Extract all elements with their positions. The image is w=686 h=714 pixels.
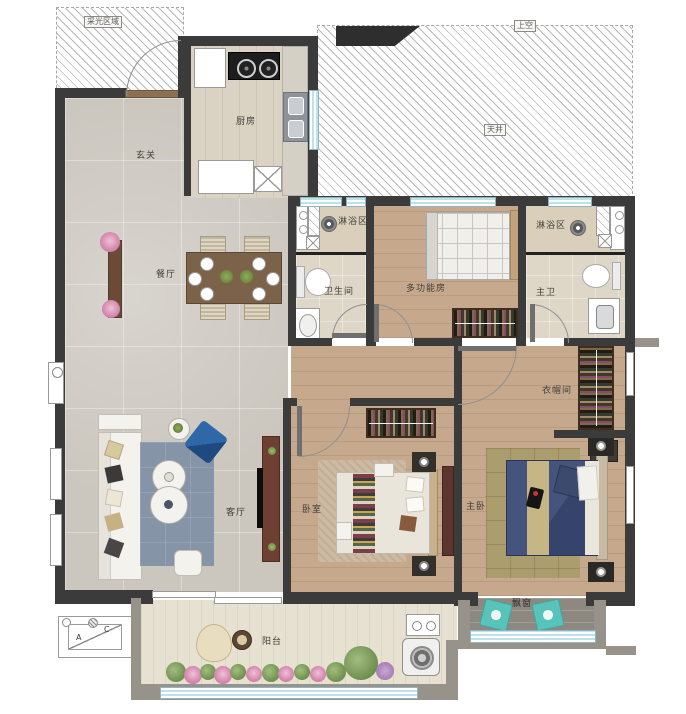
master-suite-door-leaf — [458, 346, 516, 351]
right-wall-window — [626, 352, 634, 396]
shelf-circle — [299, 211, 308, 220]
lamp-icon — [419, 457, 429, 467]
lounge-chair — [196, 624, 232, 662]
neighbor-wall-stub — [606, 646, 636, 655]
room-label-bathroom: 卫生间 — [324, 288, 354, 298]
table-decor — [164, 472, 174, 482]
floor-drain-symbol — [598, 234, 612, 248]
wall-bath-row-bottom — [414, 338, 454, 346]
plate — [252, 287, 266, 301]
hook-circle — [62, 618, 71, 627]
plant — [214, 666, 232, 684]
hatch-area-top-right — [318, 26, 632, 198]
wall-kitchen-top — [186, 36, 316, 46]
left-wall-unit — [48, 362, 64, 404]
shower-head-icon — [570, 220, 586, 236]
wall-living-bedroom-divider — [283, 398, 291, 600]
washing-machine — [402, 638, 440, 676]
right-wall-window — [626, 466, 634, 524]
closet-wardrobe — [578, 346, 614, 430]
plant — [294, 664, 310, 680]
bathroom-window — [300, 197, 342, 207]
wall-bedroom-bottom — [283, 592, 462, 604]
multi-room-window — [410, 197, 496, 207]
toilet-tank — [296, 266, 305, 298]
room-label-balcony: 阳台 — [262, 638, 282, 648]
bay-window-glazing — [470, 630, 596, 643]
bathroom-window — [346, 197, 366, 207]
wall-bath-left — [288, 196, 296, 346]
plant-table — [168, 418, 190, 440]
area-label-open-above: 上空 — [514, 20, 536, 32]
master-nightstand — [588, 562, 614, 582]
television — [257, 468, 263, 528]
shelf-circle — [615, 225, 624, 234]
plant — [246, 666, 262, 682]
toilet-bowl — [582, 264, 610, 288]
bay-pillow — [531, 598, 564, 631]
master-bath-window — [548, 197, 592, 207]
wall-top-left — [55, 88, 127, 98]
plate — [188, 272, 202, 286]
lamp-icon — [419, 561, 429, 571]
wall-multi-masterbath-divider — [518, 196, 526, 346]
balcony-sliding-door — [152, 591, 216, 598]
dining-chair — [244, 302, 270, 320]
cabinet-mark-a: A — [76, 634, 82, 643]
faucet-circle — [426, 621, 436, 631]
tv-console — [262, 436, 280, 562]
room-label-kitchen: 厨房 — [236, 118, 256, 128]
refrigerator — [194, 48, 226, 88]
area-label-daylight: 采光区域 — [84, 16, 122, 28]
lamp-icon — [596, 441, 606, 451]
toilet-tank — [612, 262, 621, 290]
ottoman — [174, 550, 202, 576]
plant — [278, 666, 294, 682]
console-plant — [268, 543, 276, 551]
coffee-table-round — [150, 486, 188, 524]
plant — [184, 666, 202, 684]
laptop-dot — [533, 490, 539, 496]
nightstand — [336, 522, 352, 540]
sofa-pillow — [105, 489, 124, 508]
master-bath-door-leaf — [530, 304, 535, 342]
multi-room-bed — [426, 212, 510, 280]
shower-head-icon — [321, 216, 337, 232]
bed-pillow — [577, 465, 599, 500]
stove-burner — [237, 59, 256, 78]
wardrobe-rod — [596, 350, 597, 427]
bedroom-dresser — [442, 466, 454, 556]
room-label-entry: 玄关 — [136, 152, 156, 162]
master-bath-sink — [588, 298, 620, 334]
bay-frame-bottom — [458, 642, 606, 649]
balcony-sliding-door — [214, 597, 282, 604]
table-centerpiece-plant — [240, 270, 253, 283]
wall-closet-bottom — [554, 430, 625, 438]
console-plant — [268, 447, 276, 455]
plant — [166, 662, 186, 682]
plate — [266, 272, 280, 286]
wall-bath-row-bottom — [288, 338, 332, 346]
neighbor-wall-stub — [635, 338, 659, 347]
room-label-multi-room: 多功能房 — [406, 285, 446, 295]
dining-chair — [200, 302, 226, 320]
large-plant — [344, 646, 378, 680]
wall-kitchen-left — [184, 46, 191, 196]
room-label-dining: 餐厅 — [156, 271, 176, 281]
gas-stove — [228, 52, 280, 80]
drain-circle — [88, 618, 98, 628]
unit-circle — [52, 367, 63, 378]
room-label-bedroom: 卧室 — [302, 506, 322, 516]
room-label-bay-window: 飘窗 — [512, 600, 532, 610]
bay-frame-left — [458, 600, 470, 646]
plant-icon — [173, 423, 183, 433]
balcony-counter — [406, 614, 440, 636]
bathroom-sink — [294, 308, 320, 340]
sink-basin — [288, 97, 304, 115]
sink-basin — [596, 305, 614, 329]
left-wall-window — [50, 448, 62, 500]
kitchen-window — [309, 90, 319, 150]
multi-room-door-leaf — [374, 304, 379, 342]
bed-pillow — [405, 476, 424, 493]
shower-partition — [526, 252, 625, 255]
flower-plant — [100, 232, 120, 252]
stove-burner — [259, 59, 278, 78]
wardrobe-rod — [369, 423, 432, 424]
balcony-side-table — [232, 630, 252, 650]
wall-right-outer — [625, 196, 635, 600]
washer-drum — [410, 646, 434, 670]
room-label-shower-1: 淋浴区 — [338, 218, 368, 228]
wardrobe-rod — [455, 323, 515, 324]
kitchen-counter-symbol — [254, 166, 282, 192]
shelf-circle — [299, 225, 308, 234]
multi-room-wardrobe — [452, 308, 518, 338]
balcony-wall-right — [446, 640, 458, 700]
shower-partition — [296, 252, 366, 255]
nightstand — [374, 463, 394, 477]
plant — [230, 664, 246, 680]
master-nightstand — [588, 436, 614, 456]
bed-runner — [353, 473, 375, 553]
sink-basin — [288, 120, 304, 138]
table-centerpiece-plant — [220, 270, 233, 283]
kitchen-sink — [283, 92, 308, 142]
lamp-icon — [596, 567, 606, 577]
table-decor — [164, 500, 173, 509]
kitchen-cabinet — [198, 160, 254, 194]
sink-basin — [299, 314, 317, 337]
bed-pillow — [405, 496, 424, 513]
shelf-circle — [615, 211, 624, 220]
bed-cushion — [399, 515, 417, 532]
shower-hatch — [596, 206, 610, 236]
sofa-pillow — [105, 465, 124, 484]
room-label-master-bedroom: 主卧 — [466, 503, 486, 513]
plant — [310, 666, 326, 682]
bathroom-door-leaf — [332, 333, 366, 338]
wall-bath-row-bottom — [516, 338, 526, 346]
ceiling-lamp — [412, 556, 436, 576]
bedroom-door-leaf — [297, 406, 302, 456]
room-label-master-bath: 主卫 — [536, 289, 556, 299]
faucet-circle — [412, 621, 422, 631]
bedroom-wardrobe — [366, 408, 436, 438]
wall-bath-row-bottom — [564, 338, 635, 346]
flower-plant — [102, 300, 120, 318]
plate — [200, 257, 214, 271]
blanket-fold — [427, 213, 438, 279]
sofa-side-table — [98, 414, 142, 430]
floor-drain-symbol — [306, 236, 320, 250]
cabinet-mark-c: C — [104, 626, 111, 635]
wall-bedroom-top — [350, 398, 462, 406]
room-label-shower-2: 淋浴区 — [536, 222, 566, 232]
ceiling-lamp — [412, 452, 436, 472]
room-label-living: 客厅 — [226, 509, 246, 519]
shower-shelf — [610, 206, 625, 250]
plant — [326, 662, 346, 682]
plant — [376, 662, 394, 680]
room-label-closet: 衣帽间 — [542, 387, 572, 397]
floor-plan: A C — [0, 0, 686, 714]
area-label-light-well: 天井 — [484, 124, 506, 136]
balcony-glazing — [160, 687, 418, 699]
shower-hatch — [308, 206, 320, 236]
plate — [252, 257, 266, 271]
balcony-wall-left — [131, 598, 141, 692]
left-wall-window — [50, 514, 62, 566]
plate — [200, 287, 214, 301]
